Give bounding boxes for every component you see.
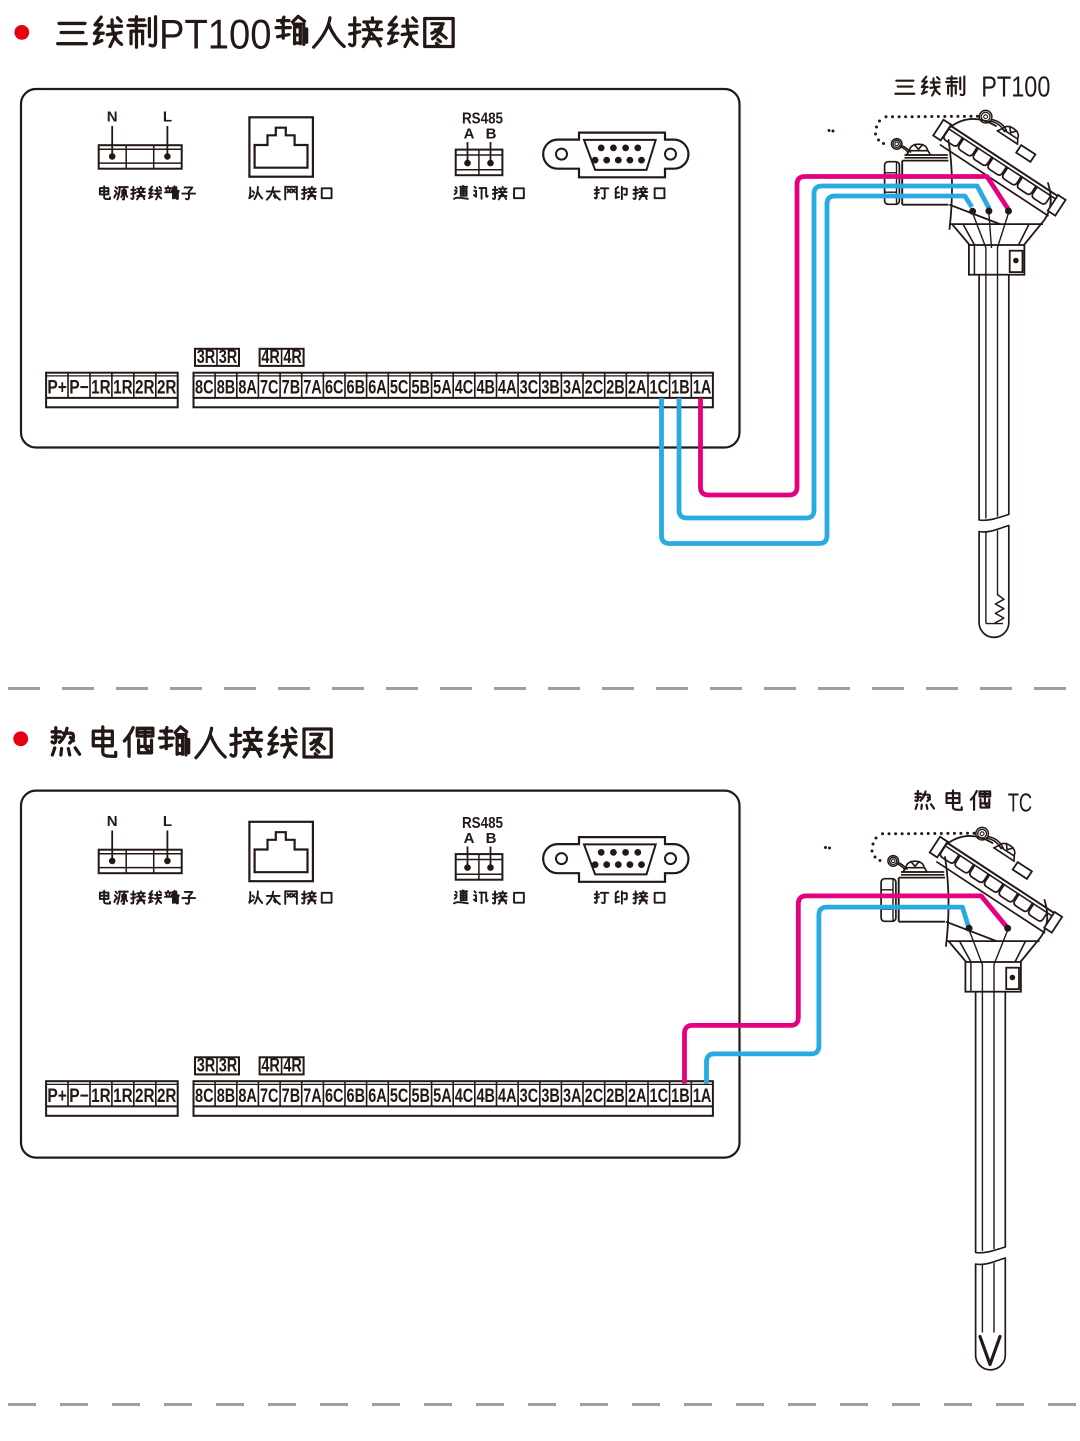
- svg-text:6B: 6B: [347, 378, 366, 399]
- svg-text:A: A: [464, 126, 475, 143]
- svg-text:5C: 5C: [390, 378, 409, 399]
- svg-text:8A: 8A: [238, 378, 257, 399]
- svg-text:2C: 2C: [585, 378, 604, 399]
- svg-text:N: N: [107, 813, 118, 830]
- svg-text:4R: 4R: [261, 1056, 280, 1077]
- svg-text:7B: 7B: [282, 378, 301, 399]
- svg-text:6C: 6C: [325, 1086, 344, 1107]
- svg-text:3R: 3R: [219, 347, 238, 368]
- svg-text:P+: P+: [47, 1086, 67, 1107]
- svg-text:5A: 5A: [433, 1086, 452, 1107]
- svg-text:2R: 2R: [135, 1086, 155, 1107]
- svg-text:N: N: [107, 109, 118, 126]
- svg-text:4R: 4R: [261, 347, 280, 368]
- svg-text:5B: 5B: [411, 1086, 430, 1107]
- svg-text:A: A: [464, 830, 475, 847]
- svg-text:3C: 3C: [520, 378, 539, 399]
- svg-text:1C: 1C: [650, 378, 669, 399]
- svg-text:7C: 7C: [260, 1086, 279, 1107]
- svg-text:TC: TC: [1008, 788, 1032, 818]
- svg-text:B: B: [486, 830, 497, 847]
- svg-text:6B: 6B: [347, 1086, 366, 1107]
- svg-text:5C: 5C: [390, 1086, 409, 1107]
- svg-text:3R: 3R: [219, 1056, 238, 1077]
- svg-text:8C: 8C: [195, 378, 214, 399]
- svg-text:3R: 3R: [197, 1056, 216, 1077]
- svg-text:5A: 5A: [433, 378, 452, 399]
- svg-text:1R: 1R: [113, 378, 133, 399]
- svg-text:8B: 8B: [217, 378, 236, 399]
- svg-text:3R: 3R: [197, 347, 216, 368]
- svg-text:2R: 2R: [157, 1086, 177, 1107]
- svg-text:1A: 1A: [693, 1086, 712, 1107]
- svg-text:7A: 7A: [303, 378, 322, 399]
- svg-text:4A: 4A: [498, 378, 517, 399]
- svg-text:4A: 4A: [498, 1086, 517, 1107]
- svg-text:L: L: [163, 109, 172, 126]
- svg-text:1R: 1R: [91, 378, 111, 399]
- svg-text:PT100: PT100: [159, 10, 272, 57]
- svg-text:P+: P+: [47, 378, 67, 399]
- svg-text:P−: P−: [69, 1086, 89, 1107]
- svg-text:8B: 8B: [217, 1086, 236, 1107]
- svg-text:8C: 8C: [195, 1086, 214, 1107]
- svg-text:2B: 2B: [606, 378, 625, 399]
- svg-text:2C: 2C: [585, 1086, 604, 1107]
- svg-text:1R: 1R: [113, 1086, 133, 1107]
- svg-text:3C: 3C: [520, 1086, 539, 1107]
- svg-text:1A: 1A: [693, 378, 712, 399]
- svg-text:2R: 2R: [157, 378, 177, 399]
- svg-text:3B: 3B: [541, 1086, 560, 1107]
- svg-text:6A: 6A: [368, 378, 387, 399]
- svg-text:1B: 1B: [671, 378, 690, 399]
- svg-text:2R: 2R: [135, 378, 155, 399]
- svg-text:5B: 5B: [411, 378, 430, 399]
- svg-text:6A: 6A: [368, 1086, 387, 1107]
- svg-text:1R: 1R: [91, 1086, 111, 1107]
- svg-text:2A: 2A: [628, 378, 647, 399]
- svg-text:4B: 4B: [476, 1086, 495, 1107]
- svg-text:4R: 4R: [283, 347, 302, 368]
- svg-text:4C: 4C: [455, 378, 474, 399]
- svg-text:L: L: [163, 813, 172, 830]
- svg-text:3B: 3B: [541, 378, 560, 399]
- svg-text:4R: 4R: [283, 1056, 302, 1077]
- svg-text:2A: 2A: [628, 1086, 647, 1107]
- svg-text:3A: 3A: [563, 1086, 582, 1107]
- svg-text:4B: 4B: [476, 378, 495, 399]
- svg-text:7B: 7B: [282, 1086, 301, 1107]
- svg-text:6C: 6C: [325, 378, 344, 399]
- svg-text:3A: 3A: [563, 378, 582, 399]
- svg-text:B: B: [486, 126, 497, 143]
- svg-text:P−: P−: [69, 378, 89, 399]
- svg-text:7A: 7A: [303, 1086, 322, 1107]
- svg-text:1C: 1C: [650, 1086, 669, 1107]
- svg-text:7C: 7C: [260, 378, 279, 399]
- svg-text:2B: 2B: [606, 1086, 625, 1107]
- svg-text:1B: 1B: [671, 1086, 690, 1107]
- svg-text:4C: 4C: [455, 1086, 474, 1107]
- svg-text:8A: 8A: [238, 1086, 257, 1107]
- svg-text:PT100: PT100: [981, 72, 1050, 104]
